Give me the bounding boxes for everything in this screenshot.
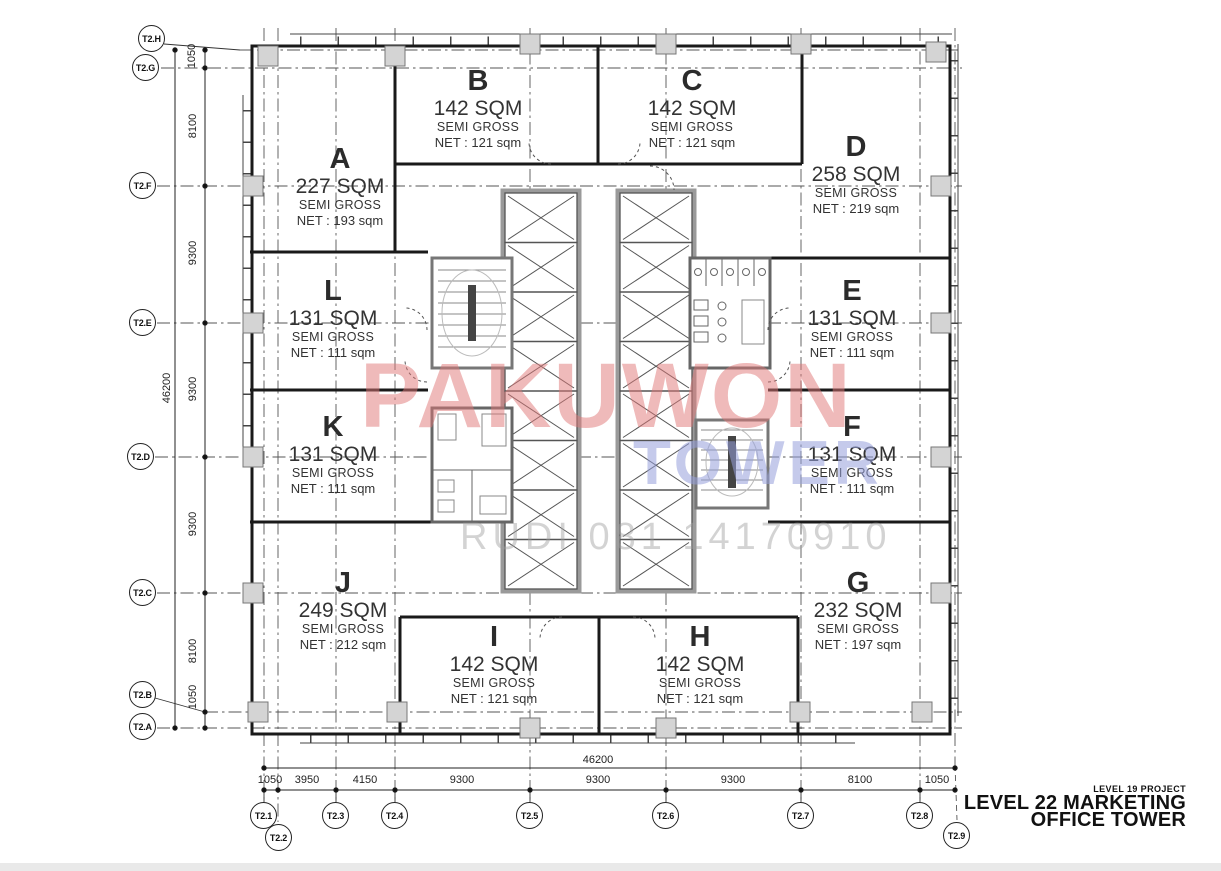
unit-net: NET : 193 sqm: [296, 213, 385, 228]
unit-gross: SEMI GROSS: [808, 466, 897, 481]
dim-bottom-segment: 4150: [353, 774, 377, 786]
floor-plan-drawing: [0, 0, 1221, 871]
unit-letter: H: [656, 622, 745, 653]
unit-area: 142 SQM: [648, 97, 737, 120]
dim-left-segment: 1050: [187, 667, 199, 727]
bottom-window-edge: [0, 863, 1221, 871]
unit-label-i: I 142 SQM SEMI GROSS NET : 121 sqm: [450, 622, 539, 706]
unit-net: NET : 219 sqm: [812, 201, 901, 216]
dim-bottom-segment: 9300: [450, 774, 474, 786]
unit-area: 131 SQM: [289, 307, 378, 330]
unit-net: NET : 111 sqm: [289, 481, 378, 496]
dim-bottom-segment: 3950: [295, 774, 319, 786]
unit-label-j: J 249 SQM SEMI GROSS NET : 212 sqm: [299, 568, 388, 652]
grid-bubble-t25: T2.5: [516, 802, 543, 829]
grid-bubble-t2c: T2.C: [129, 579, 156, 606]
unit-letter: E: [808, 276, 897, 307]
unit-label-c: C 142 SQM SEMI GROSS NET : 121 sqm: [648, 66, 737, 150]
grid-bubble-t26: T2.6: [652, 802, 679, 829]
unit-label-k: K 131 SQM SEMI GROSS NET : 111 sqm: [289, 412, 378, 496]
unit-letter: A: [296, 144, 385, 175]
elevator-core: [503, 191, 694, 591]
grid-bubble-t28: T2.8: [906, 802, 933, 829]
unit-gross: SEMI GROSS: [450, 676, 539, 691]
unit-gross: SEMI GROSS: [808, 330, 897, 345]
title-line2: OFFICE TOWER: [964, 812, 1186, 829]
dim-bottom-segment: 9300: [586, 774, 610, 786]
unit-area: 142 SQM: [450, 653, 539, 676]
dim-bottom-segment: 8100: [848, 774, 872, 786]
unit-gross: SEMI GROSS: [299, 622, 388, 637]
unit-area: 258 SQM: [812, 163, 901, 186]
unit-gross: SEMI GROSS: [648, 120, 737, 135]
grid-bubble-t2d: T2.D: [127, 443, 154, 470]
stair-block-lower: [696, 420, 768, 508]
grid-bubble-t2g: T2.G: [132, 54, 159, 81]
unit-gross: SEMI GROSS: [656, 676, 745, 691]
door-arcs: [405, 142, 790, 639]
dim-left-segment: 9300: [187, 223, 199, 283]
grid-bubble-t2h: T2.H: [138, 25, 165, 52]
service-room-block: [432, 408, 512, 522]
grid-bubble-t2b: T2.B: [129, 681, 156, 708]
unit-net: NET : 121 sqm: [648, 135, 737, 150]
unit-net: NET : 121 sqm: [434, 135, 523, 150]
toilet-block: [690, 258, 770, 368]
unit-letter: K: [289, 412, 378, 443]
unit-area: 227 SQM: [296, 175, 385, 198]
grid-bubble-t2f: T2.F: [129, 172, 156, 199]
dim-bottom-segment: 9300: [721, 774, 745, 786]
unit-gross: SEMI GROSS: [814, 622, 903, 637]
dim-left-segment: 9300: [187, 359, 199, 419]
unit-letter: C: [648, 66, 737, 97]
unit-letter: D: [812, 132, 901, 163]
unit-area: 131 SQM: [289, 443, 378, 466]
unit-label-b: B 142 SQM SEMI GROSS NET : 121 sqm: [434, 66, 523, 150]
unit-label-l: L 131 SQM SEMI GROSS NET : 111 sqm: [289, 276, 378, 360]
unit-gross: SEMI GROSS: [289, 466, 378, 481]
unit-gross: SEMI GROSS: [289, 330, 378, 345]
dim-left-segment: 8100: [187, 96, 199, 156]
unit-letter: G: [814, 568, 903, 599]
unit-area: 131 SQM: [808, 443, 897, 466]
unit-gross: SEMI GROSS: [434, 120, 523, 135]
unit-gross: SEMI GROSS: [296, 198, 385, 213]
unit-letter: J: [299, 568, 388, 599]
grid-bubble-t27: T2.7: [787, 802, 814, 829]
unit-letter: L: [289, 276, 378, 307]
stair-block-upper: [432, 258, 512, 368]
grid-bubble-t23: T2.3: [322, 802, 349, 829]
unit-letter: F: [808, 412, 897, 443]
unit-net: NET : 111 sqm: [289, 345, 378, 360]
unit-net: NET : 111 sqm: [808, 345, 897, 360]
unit-net: NET : 121 sqm: [450, 691, 539, 706]
dim-left-segment: 1050: [186, 26, 198, 86]
unit-area: 142 SQM: [434, 97, 523, 120]
unit-letter: B: [434, 66, 523, 97]
unit-net: NET : 121 sqm: [656, 691, 745, 706]
unit-label-a: A 227 SQM SEMI GROSS NET : 193 sqm: [296, 144, 385, 228]
unit-area: 232 SQM: [814, 599, 903, 622]
title-block: LEVEL 19 PROJECT LEVEL 22 MARKETING OFFI…: [964, 784, 1186, 829]
grid-bubble-t22: T2.2: [265, 824, 292, 851]
unit-net: NET : 197 sqm: [814, 637, 903, 652]
dim-bottom-segment: 1050: [258, 774, 282, 786]
unit-label-h: H 142 SQM SEMI GROSS NET : 121 sqm: [656, 622, 745, 706]
grid-bubble-t24: T2.4: [381, 802, 408, 829]
dim-bottom-segment: 1050: [925, 774, 949, 786]
unit-gross: SEMI GROSS: [812, 186, 901, 201]
unit-area: 249 SQM: [299, 599, 388, 622]
dim-bottom-total: 46200: [583, 754, 614, 766]
dim-left-total: 46200: [161, 358, 173, 418]
unit-label-e: E 131 SQM SEMI GROSS NET : 111 sqm: [808, 276, 897, 360]
unit-label-g: G 232 SQM SEMI GROSS NET : 197 sqm: [814, 568, 903, 652]
unit-label-d: D 258 SQM SEMI GROSS NET : 219 sqm: [812, 132, 901, 216]
grid-bubble-t2e: T2.E: [129, 309, 156, 336]
dim-left-segment: 9300: [187, 494, 199, 554]
unit-label-f: F 131 SQM SEMI GROSS NET : 111 sqm: [808, 412, 897, 496]
unit-net: NET : 212 sqm: [299, 637, 388, 652]
unit-letter: I: [450, 622, 539, 653]
unit-area: 142 SQM: [656, 653, 745, 676]
unit-area: 131 SQM: [808, 307, 897, 330]
unit-net: NET : 111 sqm: [808, 481, 897, 496]
grid-bubble-t2a: T2.A: [129, 713, 156, 740]
